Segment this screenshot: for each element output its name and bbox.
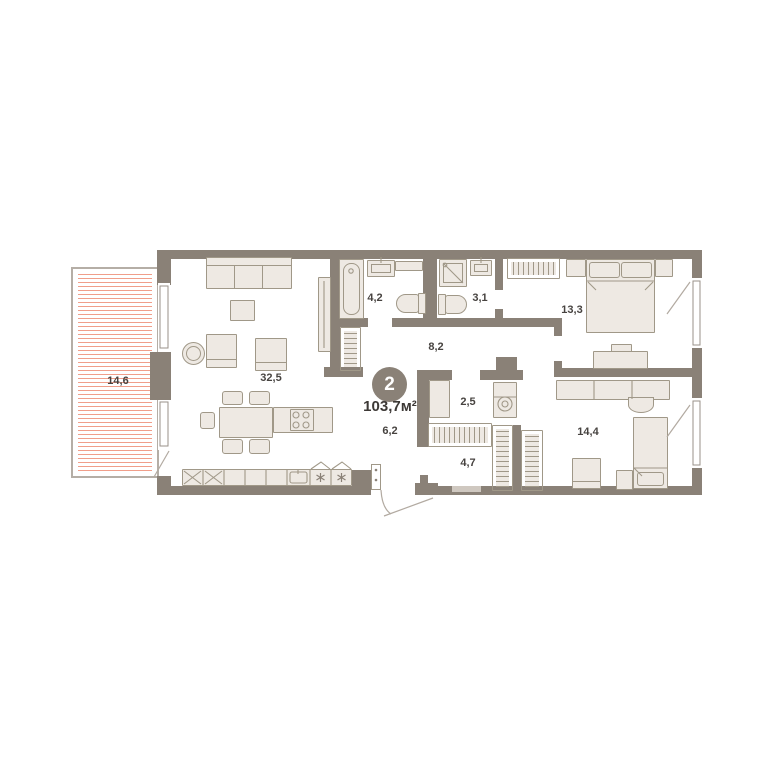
desk-bedroom-1 <box>593 351 648 369</box>
side-table-inner <box>186 346 201 361</box>
wall-left-mid <box>150 352 171 400</box>
washbasin-shower-room-inner <box>474 264 488 272</box>
nightstand-right <box>655 259 673 277</box>
monitor-bedroom-1 <box>611 344 632 352</box>
toilet-bathroom-bowl <box>396 294 419 313</box>
dining-table <box>219 407 273 438</box>
washbasin-bathroom-inner <box>371 264 391 273</box>
wall-closet-divider <box>513 425 521 492</box>
washing-machine <box>493 382 517 418</box>
wall-left-top <box>157 250 171 285</box>
bedroom-2-wardrobe <box>521 430 543 491</box>
sofa <box>206 257 292 289</box>
bath-counter <box>395 261 423 271</box>
wall-shower-right <box>495 259 503 290</box>
balcony-hatch <box>78 274 152 471</box>
doormat <box>452 486 481 492</box>
wall-right-1 <box>692 250 702 280</box>
room-label-wardrobe-room: 2,5 <box>460 396 475 408</box>
bathtub-inner <box>343 263 360 315</box>
dining-chair-4 <box>249 439 270 454</box>
bedroom-1-wardrobe <box>507 258 560 279</box>
room-label-corridor: 6,2 <box>382 425 397 437</box>
wall-kitchen-column <box>352 470 371 495</box>
nightstand-bedroom-2 <box>616 470 633 490</box>
room-label-shower-room: 3,1 <box>472 292 487 304</box>
room-label-entry-hall: 4,7 <box>460 457 475 469</box>
armchair-2 <box>255 338 287 371</box>
armchair-1-line <box>207 359 236 360</box>
window-bedroom-1 <box>691 278 703 348</box>
sofa-divider-2 <box>262 265 263 288</box>
hall-wardrobe <box>340 327 361 371</box>
kitchen-counter <box>182 469 352 486</box>
room-label-bathroom: 4,2 <box>367 292 382 304</box>
wall-bathroom-1 <box>340 318 368 327</box>
room-label-balcony: 14,6 <box>107 375 128 387</box>
wall-left-bottom <box>157 476 171 486</box>
dining-chair-3 <box>222 439 243 454</box>
wall-entry-jamb <box>415 483 438 495</box>
coffee-table <box>230 300 255 321</box>
window-balcony-2 <box>158 400 170 450</box>
wall-bathroom-2 <box>392 318 562 327</box>
side-table <box>182 342 205 365</box>
corridor-wardrobe <box>492 425 513 491</box>
wall-wardrobe-top-right <box>480 370 523 380</box>
wall-hall-stub-top <box>554 327 562 336</box>
wall-wardrobe-top-left <box>417 370 452 380</box>
sofa-back-line <box>207 265 291 266</box>
dining-chair-1 <box>222 391 243 405</box>
room-label-bedroom-2: 14,4 <box>577 426 598 438</box>
pillow-left <box>589 262 620 278</box>
room-label-bedroom-1: 13,3 <box>561 304 582 316</box>
tv-cabinet <box>318 277 331 352</box>
total-area: 103,7м² <box>340 398 440 415</box>
bathtub <box>339 259 364 319</box>
pillow-single-bed <box>637 472 664 486</box>
wall-entry-jamb-stub <box>420 475 428 484</box>
armchair-bedroom-2 <box>572 458 601 489</box>
armchair-2-line <box>256 362 286 363</box>
entrance-door-leaf <box>371 464 381 490</box>
wall-right-2 <box>692 346 702 400</box>
wall-bottom-left <box>157 486 371 495</box>
stove <box>290 409 314 431</box>
balcony-area <box>71 267 159 478</box>
window-balcony-1 <box>158 283 170 352</box>
dining-chair-5 <box>200 412 215 429</box>
washbasin-shower-room <box>470 260 492 276</box>
desk-chair <box>628 397 654 413</box>
wall-bedroom-divider <box>554 368 692 377</box>
dining-chair-2 <box>249 391 270 405</box>
closet-wardrobe <box>428 423 492 447</box>
toilet-shower-room-bowl <box>445 295 467 314</box>
rooms-count: 2 <box>384 374 395 396</box>
armchair-bedroom-2-line <box>573 481 600 482</box>
armchair-1 <box>206 334 237 368</box>
rooms-count-badge: 2 <box>372 367 407 402</box>
nightstand-left <box>566 259 586 277</box>
window-bedroom-2 <box>691 398 703 468</box>
pillow-right <box>621 262 652 278</box>
sofa-divider-1 <box>234 265 235 288</box>
room-label-living-kitchen: 32,5 <box>260 372 281 384</box>
floor-plan: 14,6 32,5 4,2 3,1 8,2 13,3 2,5 6,2 4,7 1… <box>0 0 768 768</box>
toilet-bathroom-tank <box>418 293 426 314</box>
shower-cabin-inner <box>443 263 463 283</box>
wall-shower-jamb <box>495 309 503 318</box>
wall-wardrobe-stub <box>496 357 517 370</box>
room-label-hall: 8,2 <box>428 341 443 353</box>
washbasin-bathroom <box>367 260 395 277</box>
shower-cabin <box>439 259 467 287</box>
